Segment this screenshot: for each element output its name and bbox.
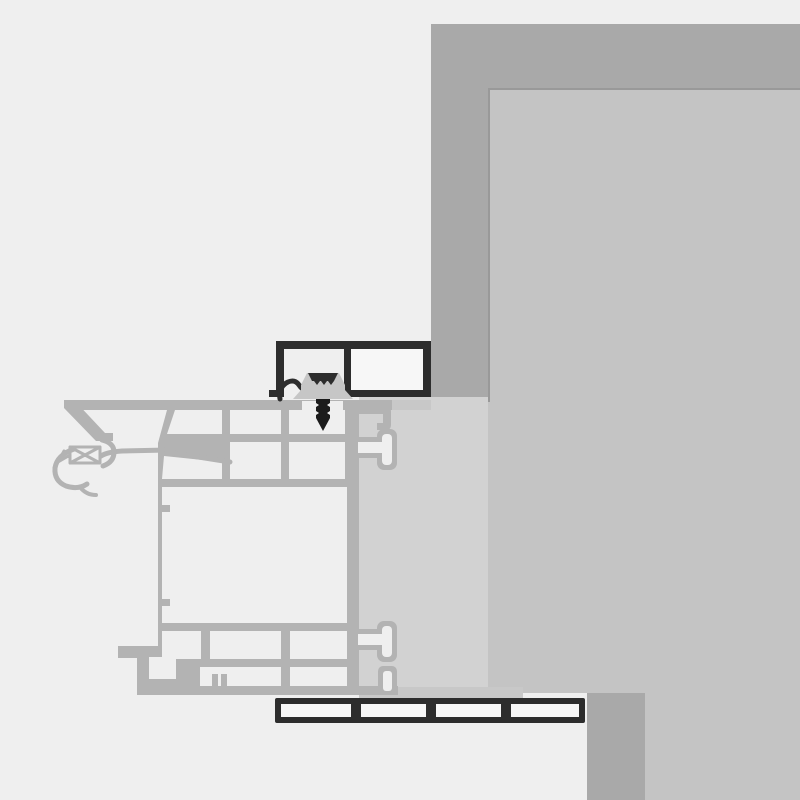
wall-notch [162, 505, 170, 512]
endcap-tooth [183, 663, 198, 678]
frame-cell [290, 667, 347, 686]
window-sill [275, 698, 585, 723]
interior-wall-border-left [488, 88, 490, 402]
endcap-opening [149, 657, 176, 679]
frame-cell [230, 442, 281, 479]
cell-tooth [221, 674, 227, 686]
frame-cell [290, 631, 347, 659]
frame-cell [289, 410, 345, 434]
frame-cell [289, 442, 345, 479]
sill-cell [511, 704, 579, 717]
frame-cell-main [162, 487, 347, 623]
frame-cell [230, 410, 281, 434]
frame-cell [210, 631, 281, 659]
sill-cell [361, 704, 426, 717]
cell-tooth [212, 674, 218, 686]
sill-cell [436, 704, 501, 717]
bracket-cell [351, 349, 423, 390]
diagram-stage [0, 0, 800, 800]
wall-column [587, 693, 645, 800]
diagram-canvas [0, 0, 800, 800]
anchor-lug-core [358, 634, 384, 645]
frame-cell [167, 410, 222, 434]
interior-wall-border-top [488, 88, 800, 90]
frame-cell [162, 631, 201, 659]
endcap-foot [137, 679, 160, 695]
bracket-bottom-bar [344, 390, 431, 397]
bracket-mid-wall [344, 349, 351, 396]
bracket-top-bar [276, 341, 431, 349]
bracket-right-wall [423, 341, 431, 397]
anchor-lug-core [358, 442, 384, 453]
wall-notch [162, 599, 170, 606]
anchor-lug-core [383, 671, 392, 691]
frame-extension-bar [392, 400, 431, 410]
sill-cell [281, 704, 351, 717]
